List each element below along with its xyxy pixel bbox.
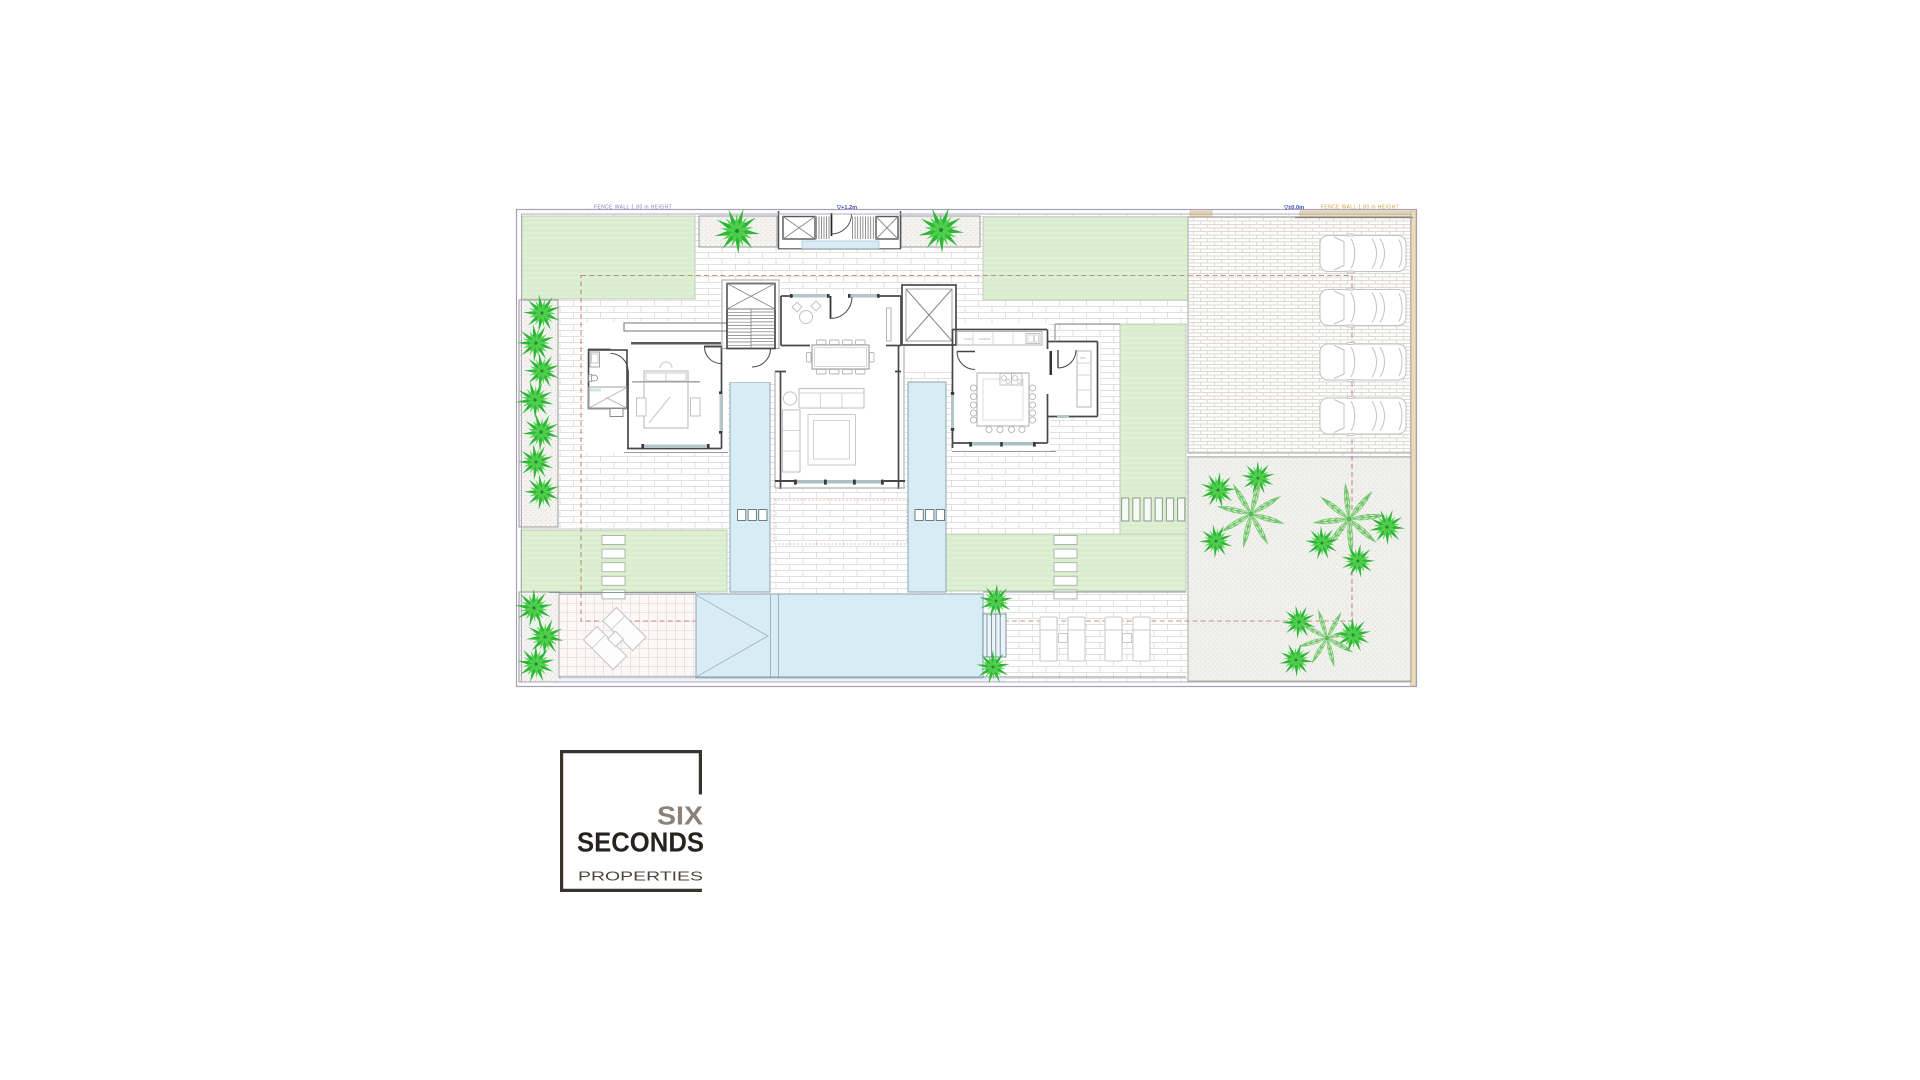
svg-text:FENCE WALL 1.80 m HEIGHT: FENCE WALL 1.80 m HEIGHT <box>594 205 672 211</box>
svg-text:▽±0.0m: ▽±0.0m <box>1283 205 1304 211</box>
svg-text:SECONDS: SECONDS <box>577 827 704 858</box>
svg-text:WM: WM <box>1080 356 1086 360</box>
svg-text:OVEN: OVEN <box>964 337 973 341</box>
svg-text:PROPERTIES: PROPERTIES <box>578 869 703 884</box>
svg-text:▽+1.2m: ▽+1.2m <box>836 205 857 211</box>
svg-text:FRIDGE: FRIDGE <box>979 337 990 341</box>
svg-text:FENCE WALL 1.80 m HEIGHT: FENCE WALL 1.80 m HEIGHT <box>1321 205 1399 211</box>
